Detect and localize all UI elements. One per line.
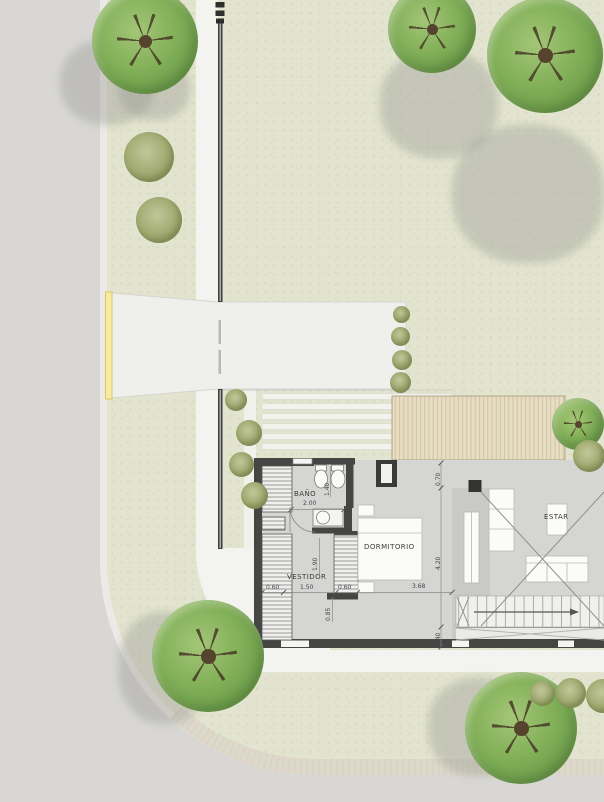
dimension-label: 1.90 (312, 558, 319, 571)
shrub-icon (225, 389, 247, 411)
dimension-label: 0.60 (266, 584, 279, 591)
dimension-label: 2.00 (303, 500, 316, 507)
tree-shadow (452, 125, 604, 263)
dimension-label: 1.40 (324, 483, 331, 496)
dimension-label: 0.70 (435, 473, 442, 486)
shelving (489, 489, 514, 551)
shrub-icon (391, 327, 410, 346)
nightstand (358, 505, 374, 516)
tree-icon (487, 0, 603, 113)
shrub-icon (390, 372, 411, 393)
room-label-vestidor: VESTIDOR (287, 573, 326, 581)
shrub-icon (241, 482, 268, 509)
shrub-icon (556, 678, 586, 708)
tree-icon (152, 600, 264, 712)
dimension-label: 0.60 (338, 584, 351, 591)
shrub-icon (124, 132, 174, 182)
sink (317, 511, 330, 524)
column (469, 480, 482, 492)
site-plan: BAÑOVESTIDORDORMITORIOESTAR2.001.400.701… (0, 0, 604, 802)
shrub-icon (393, 306, 410, 323)
building-floor (256, 460, 604, 646)
dimension-label: 4.20 (435, 557, 442, 570)
shrub-icon (573, 440, 604, 472)
shrub-icon (392, 350, 412, 370)
deck-large (392, 396, 565, 460)
shrub-icon (236, 420, 262, 446)
shrub-icon (136, 197, 182, 243)
dimension-label: 0.40 (435, 633, 442, 646)
dimension-label: 0.85 (325, 608, 332, 621)
shrub-icon (229, 452, 254, 477)
shrub-icon (530, 681, 555, 706)
room-label-estar: ESTAR (544, 513, 569, 521)
room-label-bano: BAÑO (294, 490, 316, 498)
window (293, 459, 312, 465)
sofa (526, 556, 588, 582)
dimension-label: 3.68 (412, 583, 425, 590)
dimension-label: 1.50 (300, 584, 313, 591)
nightstand (358, 582, 374, 593)
room-label-dormitorio: DORMITORIO (364, 543, 415, 551)
bidet (331, 470, 345, 488)
